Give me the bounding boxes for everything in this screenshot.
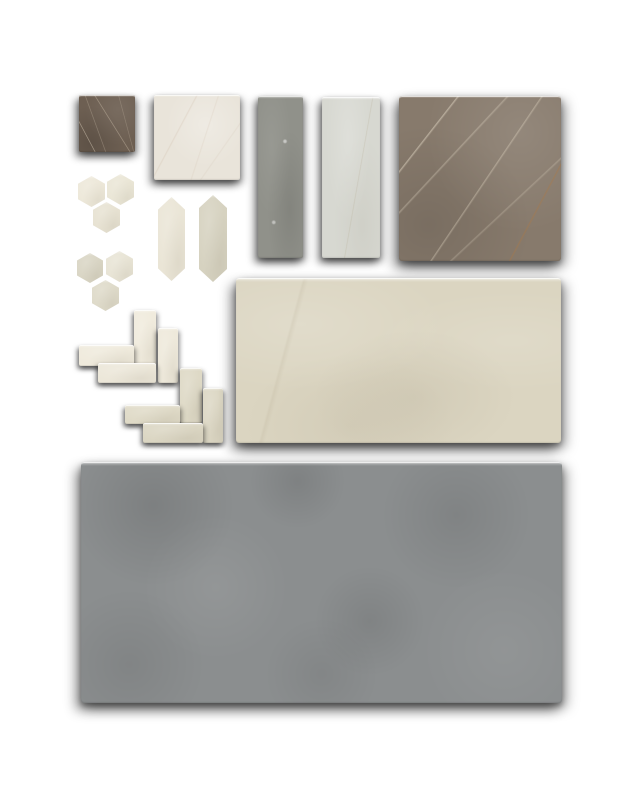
sample-square-taupe-marble: [399, 96, 561, 261]
hex-mosaic-a-chip-right: [107, 174, 134, 205]
sample-plank-light-gray: [322, 97, 380, 258]
sample-picket-greige: [199, 195, 227, 282]
herringbone-a-brick-horizontal-2: [98, 363, 156, 383]
hex-mosaic-a-chip-bottom: [93, 202, 120, 233]
sample-plank-gray: [258, 96, 303, 258]
sample-square-dark-marble: [79, 95, 135, 152]
herringbone-a-brick-vertical-2: [158, 328, 178, 383]
sample-picket-cream: [158, 197, 185, 281]
tile-sample-collage: [0, 0, 640, 800]
herringbone-b-brick-horizontal-2: [143, 423, 203, 443]
herringbone-b-brick-vertical-2: [203, 388, 223, 443]
hex-mosaic-b-chip-bottom: [92, 280, 119, 311]
sample-slab-gray-concrete: [81, 462, 562, 703]
hex-mosaic-b-chip-left: [77, 253, 103, 283]
herringbone-b-brick-vertical-1: [180, 368, 202, 423]
sample-slab-cream-limestone: [236, 278, 561, 443]
hex-mosaic-a-chip-left: [78, 176, 105, 207]
sample-square-cream-marble: [154, 95, 240, 180]
herringbone-a-brick-vertical-1: [134, 310, 156, 365]
hex-mosaic-b-chip-right: [106, 251, 133, 282]
herringbone-b-brick-horizontal-1: [125, 405, 180, 424]
